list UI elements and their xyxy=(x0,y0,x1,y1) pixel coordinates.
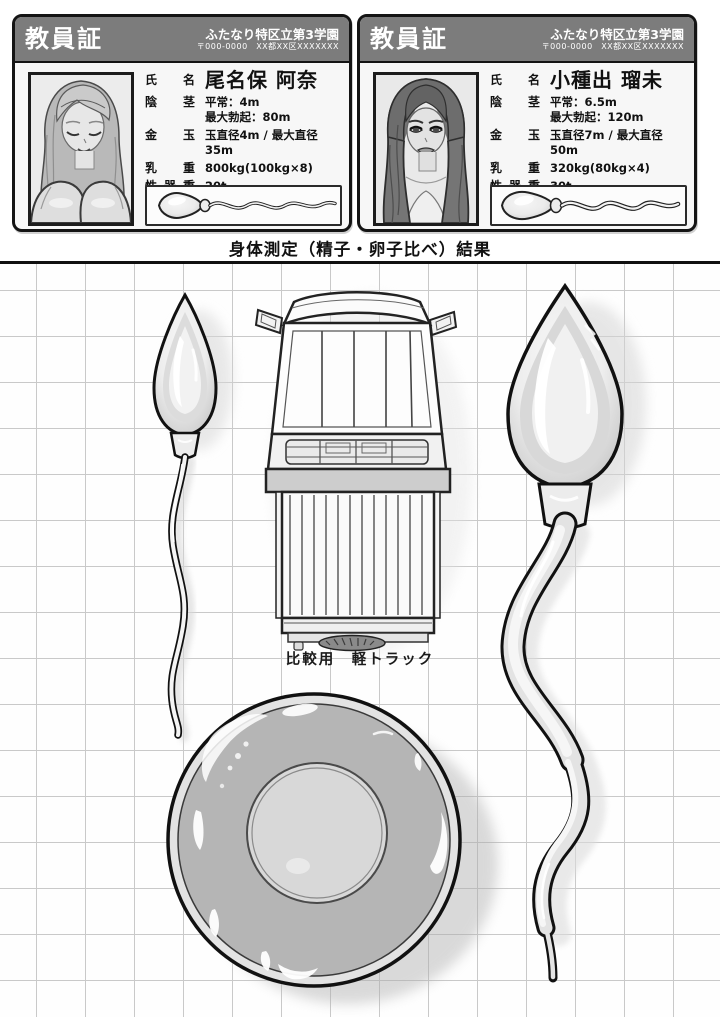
card1-name-value: 尾名保 阿奈 xyxy=(205,69,318,92)
card1-school-block: ふたなり特区立第3学園 〒000-0000 XX都XX区XXXXXXX xyxy=(197,27,339,52)
comparison-grid-area xyxy=(0,264,720,1017)
card2-portrait xyxy=(373,72,479,226)
card2-name-value: 小種出 瑠未 xyxy=(550,69,663,92)
card1-school-address: 〒000-0000 XX都XX区XXXXXXX xyxy=(197,42,339,52)
field-label: 金玉 xyxy=(145,126,195,158)
field-label: 金玉 xyxy=(490,126,540,158)
card2-field-breast-weight: 乳重 320kg(80kg×4) xyxy=(490,159,688,176)
field-value: 800kg(100kg×8) xyxy=(205,159,313,176)
field-value: 平常：4m 最大勃起：80m xyxy=(205,93,291,125)
card2-sperm-thumbnail xyxy=(490,185,687,226)
card1-field-testicles: 金玉 玉直径4m / 最大直径35m xyxy=(145,126,343,158)
card1-school-name: ふたなり特区立第3学園 xyxy=(197,27,339,42)
section-title: 身体測定（精子・卵子比べ）結果 xyxy=(0,236,720,260)
teacher-id-card-2: 教員証 ふたなり特区立第3学園 〒000-0000 XX都XX区XXXXXXX xyxy=(357,14,697,232)
portrait-illustration-1 xyxy=(31,75,131,223)
card2-field-testicles: 金玉 玉直径7m / 最大直径50m xyxy=(490,126,688,158)
card1-name-row: 氏名 尾名保 阿奈 xyxy=(145,69,343,92)
dish-illustration xyxy=(168,694,498,1004)
card2-school-address: 〒000-0000 XX都XX区XXXXXXX xyxy=(542,42,684,52)
field-label: 乳重 xyxy=(145,159,195,176)
field-value: 平常：6.5m 最大勃起：120m xyxy=(550,93,644,125)
card2-title: 教員証 xyxy=(370,27,448,51)
field-label: 陰茎 xyxy=(145,93,195,125)
sperm-small-illustration xyxy=(154,295,233,738)
card2-school-block: ふたなり特区立第3学園 〒000-0000 XX都XX区XXXXXXX xyxy=(542,27,684,52)
card1-body: 氏名 尾名保 阿奈 陰茎 平常：4m 最大勃起：80m 金玉 玉直径4m / 最… xyxy=(15,63,349,224)
card1-field-penis: 陰茎 平常：4m 最大勃起：80m xyxy=(145,93,343,125)
sperm-thumb-illustration-1 xyxy=(147,187,340,224)
card2-name-row: 氏名 小種出 瑠未 xyxy=(490,69,688,92)
page: 教員証 ふたなり特区立第3学園 〒000-0000 XX都XX区XXXXXXX xyxy=(0,0,720,1017)
teacher-id-card-1: 教員証 ふたなり特区立第3学園 〒000-0000 XX都XX区XXXXXXX xyxy=(12,14,352,232)
card2-body: 氏名 小種出 瑠未 陰茎 平常：6.5m 最大勃起：120m 金玉 玉直径7m … xyxy=(360,63,694,224)
card1-title: 教員証 xyxy=(25,27,103,51)
field-label: 乳重 xyxy=(490,159,540,176)
field-label: 陰茎 xyxy=(490,93,540,125)
field-value: 玉直径4m / 最大直径35m xyxy=(205,126,343,158)
sperm-large-illustration xyxy=(508,286,646,978)
card1-field-breast-weight: 乳重 800kg(100kg×8) xyxy=(145,159,343,176)
card1-name-label: 氏名 xyxy=(145,69,195,92)
card1-sperm-thumbnail xyxy=(145,185,342,226)
card2-header: 教員証 ふたなり特区立第3学園 〒000-0000 XX都XX区XXXXXXX xyxy=(360,17,694,63)
field-value: 玉直径7m / 最大直径50m xyxy=(550,126,688,158)
card2-school-name: ふたなり特区立第3学園 xyxy=(542,27,684,42)
card1-portrait xyxy=(28,72,134,226)
portrait-illustration-2 xyxy=(376,75,476,223)
comparison-diagram xyxy=(0,264,720,1017)
field-value: 320kg(80kg×4) xyxy=(550,159,650,176)
card1-header: 教員証 ふたなり特区立第3学園 〒000-0000 XX都XX区XXXXXXX xyxy=(15,17,349,63)
sperm-thumb-illustration-2 xyxy=(492,187,685,224)
truck-label: 比較用 軽トラック xyxy=(0,648,720,669)
card2-name-label: 氏名 xyxy=(490,69,540,92)
truck-illustration xyxy=(256,292,472,654)
card2-field-penis: 陰茎 平常：6.5m 最大勃起：120m xyxy=(490,93,688,125)
